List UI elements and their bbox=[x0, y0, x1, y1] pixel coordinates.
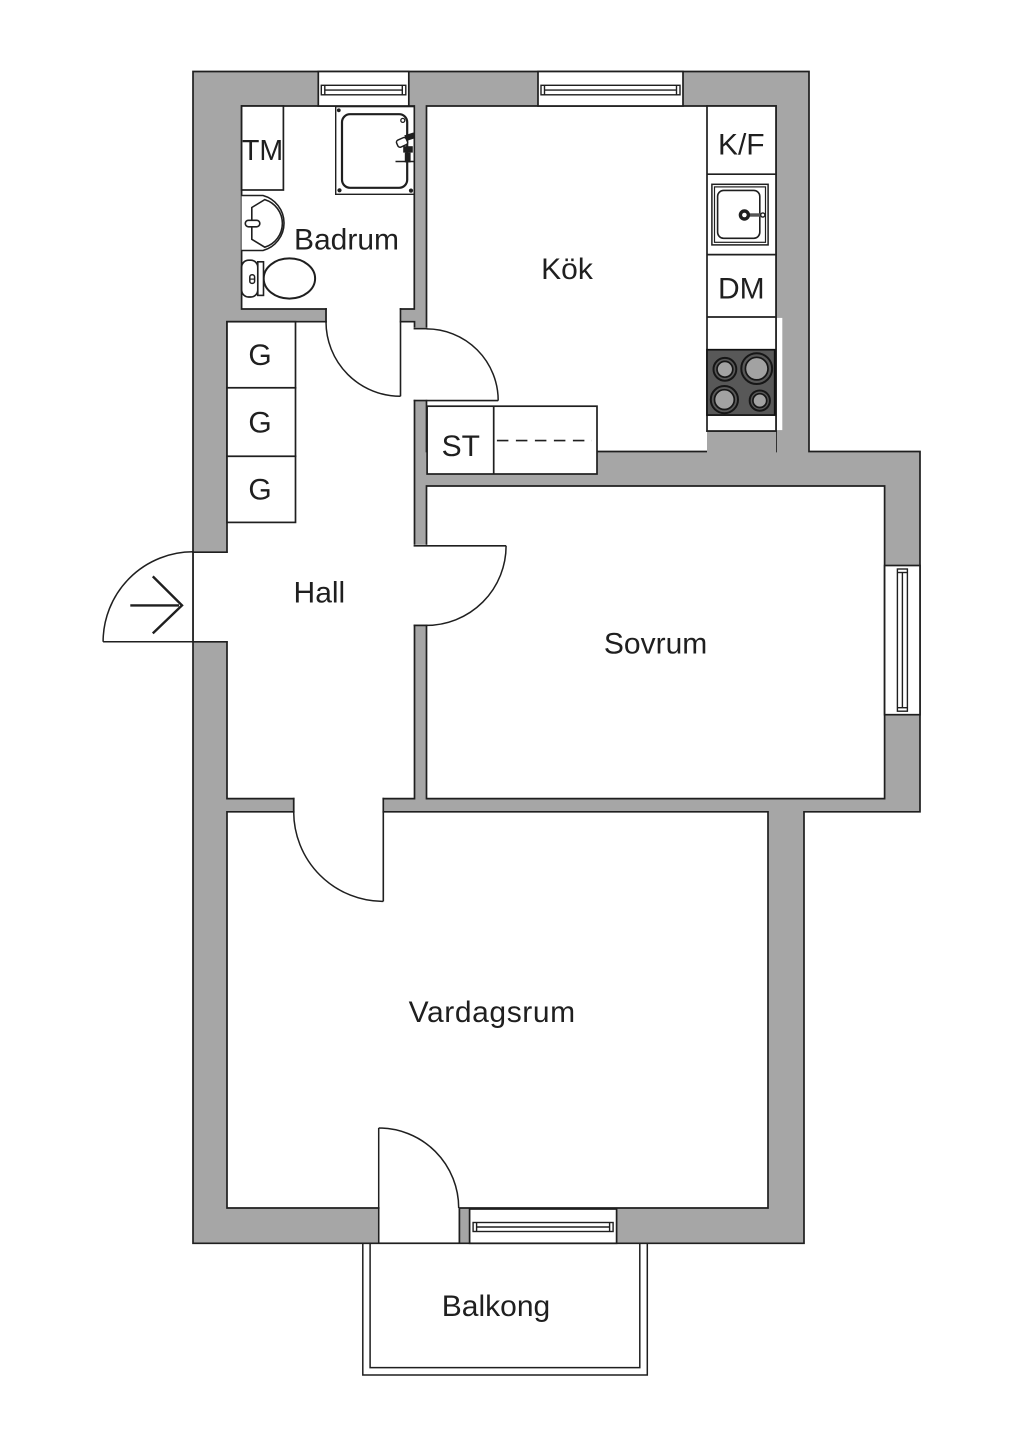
svg-text:TM: TM bbox=[242, 135, 283, 167]
svg-text:Vardagsrum: Vardagsrum bbox=[409, 996, 576, 1029]
svg-text:Kök: Kök bbox=[541, 253, 594, 286]
svg-text:Badrum: Badrum bbox=[294, 224, 399, 257]
svg-text:DM: DM bbox=[718, 272, 765, 305]
svg-text:G: G bbox=[248, 406, 271, 439]
svg-text:G: G bbox=[248, 474, 271, 507]
svg-text:G: G bbox=[248, 339, 271, 372]
svg-text:Sovrum: Sovrum bbox=[604, 628, 707, 661]
svg-text:ST: ST bbox=[442, 430, 480, 463]
svg-text:Balkong: Balkong bbox=[442, 1290, 550, 1323]
svg-text:K/F: K/F bbox=[718, 128, 765, 161]
svg-text:Hall: Hall bbox=[294, 576, 346, 609]
